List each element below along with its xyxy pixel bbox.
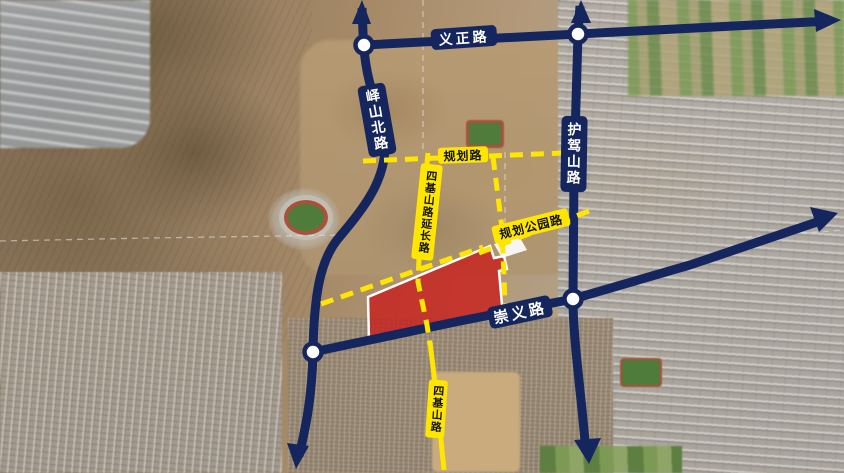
arrowhead-hujiashan-south — [574, 438, 601, 464]
arrowhead-yizheng-east — [814, 9, 841, 32]
junction-node-yizheng-hujiashan — [570, 26, 587, 43]
junction-node-yizheng-yishanbei — [356, 37, 373, 54]
arrowhead-yishanbei-north — [352, 0, 371, 24]
planned-road-label-sijishan: 四基山路 — [425, 379, 448, 438]
junction-node-chongyi-hujiashan — [565, 291, 582, 308]
road-label-hujiashan: 护驾山路 — [560, 116, 587, 192]
road-path-hujiashan — [573, 6, 586, 452]
arrowhead-hujiashan-north — [571, 0, 591, 23]
junction-node-chongyi-yishanbei — [305, 344, 322, 361]
boundary-line-left — [0, 235, 345, 241]
road-path-yishanbei — [299, 8, 385, 456]
planning-map: 义正路 峄山北路 护驾山路 崇义路 规划路 规划公园路 四基山路延长路 四基山路 — [0, 0, 844, 473]
planned-road-label-guihua: 规划路 — [438, 146, 489, 164]
trunk-roads — [299, 6, 830, 456]
arrowhead-yishanbei-south — [287, 443, 309, 469]
